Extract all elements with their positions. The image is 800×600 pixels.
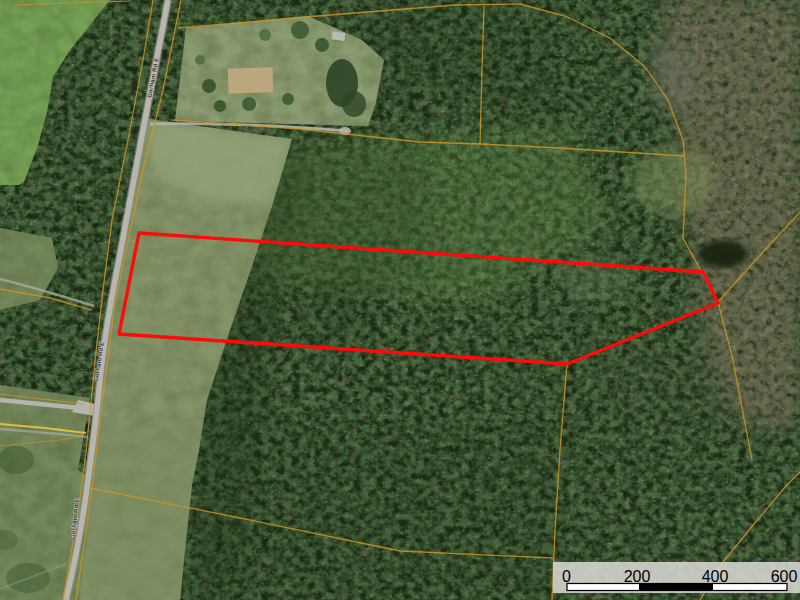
svg-text:600: 600 bbox=[771, 568, 798, 585]
svg-text:200: 200 bbox=[624, 568, 651, 585]
svg-text:400: 400 bbox=[702, 568, 729, 585]
svg-text:0: 0 bbox=[562, 568, 571, 585]
